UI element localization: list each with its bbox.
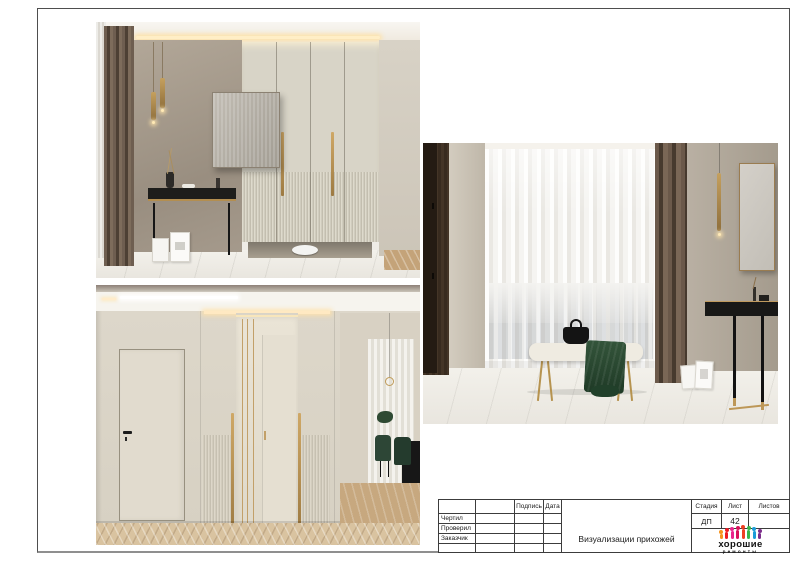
chair-leg: [380, 461, 381, 477]
person-icon: [725, 532, 728, 539]
vase: [166, 172, 174, 188]
led-cove-light: [136, 36, 380, 39]
pendant-cord: [153, 42, 154, 94]
robot-vacuum: [292, 245, 318, 255]
logo-text-line2: ремонты: [723, 549, 759, 554]
stage-header: Стадия: [692, 500, 722, 514]
door-handle: [123, 431, 132, 434]
drawing-sheet: Подпись Дата Чертил Проверил Заказчик Ви…: [0, 0, 800, 566]
bag-print: [700, 369, 708, 379]
gold-pendant-light: [160, 78, 165, 108]
hidden-door: [119, 349, 185, 521]
chair-leg: [388, 461, 389, 477]
green-chair: [375, 435, 391, 461]
wardrobe-door-seam: [344, 42, 345, 242]
fluted-wainscot: [298, 435, 330, 533]
person-icon: [736, 530, 739, 539]
logo-text-line1: хорошие: [718, 540, 762, 549]
wood-floor-sliver: [384, 250, 420, 270]
stamp-cell: [476, 534, 515, 544]
linear-ceiling-light: [120, 296, 238, 299]
beige-wall: [449, 143, 485, 368]
gold-trim: [242, 319, 243, 525]
title-block-sheet-info: Стадия Лист Листов ДП 42 хорошие ремонты: [692, 500, 789, 552]
stamp-cell: [476, 514, 515, 524]
chevron-wood-floor: [96, 523, 420, 545]
skyline-haze: [489, 283, 653, 323]
entry-door: [423, 143, 437, 373]
render-hallway-window: [423, 143, 778, 424]
console-leg: [733, 316, 736, 398]
sconce-cord: [719, 143, 720, 173]
stamp-cell: [439, 544, 476, 552]
stamp-cell: [515, 534, 544, 544]
green-chair: [394, 437, 411, 465]
gold-trim: [247, 319, 248, 525]
door-keyhole: [125, 437, 127, 441]
brown-curtain: [104, 26, 134, 266]
people-row-icon: [720, 529, 762, 539]
render-hallway-doors: [96, 285, 420, 545]
door-hinge: [432, 273, 434, 279]
row-label-checked-by: Проверил: [439, 524, 476, 534]
console-table: [705, 301, 778, 316]
curtain-hem-shadow: [485, 361, 657, 368]
signature-header: Подпись: [515, 500, 544, 514]
person-icon: [758, 533, 761, 539]
pendant-glow: [161, 109, 164, 112]
date-header: Дата: [544, 500, 562, 514]
green-throw-tail: [591, 385, 619, 397]
gold-trim: [253, 319, 254, 525]
stamp-cell: [544, 514, 562, 524]
reflected-door: [262, 335, 296, 529]
stamp-cell: [515, 524, 544, 534]
gold-door-handle: [331, 132, 334, 196]
decor-dish: [182, 184, 195, 188]
stamp-cell: [544, 524, 562, 534]
project-title: Визуализации прихожей: [562, 500, 692, 552]
gold-slide-handle: [298, 413, 301, 533]
wall-art: [739, 163, 775, 271]
door-hinge: [432, 203, 434, 209]
console-leg: [761, 316, 764, 402]
decor-bottle: [216, 178, 220, 188]
cove-light: [102, 298, 116, 300]
pendant-cord: [389, 313, 390, 377]
person-icon: [747, 530, 750, 539]
person-icon: [731, 531, 734, 539]
person-icon: [742, 529, 745, 539]
stamp-cell: [476, 524, 515, 534]
stamp-cell: [515, 544, 544, 552]
gold-pendant-ring: [385, 377, 394, 386]
stamp-cell: [476, 500, 515, 514]
pendant-glow: [152, 121, 155, 124]
title-block: Подпись Дата Чертил Проверил Заказчик Ви…: [438, 499, 790, 553]
handbag: [563, 327, 589, 344]
stamp-cell: [544, 534, 562, 544]
row-label-client: Заказчик: [439, 534, 476, 544]
gold-door-handle: [281, 132, 284, 196]
gold-wall-sconce: [717, 173, 721, 231]
ceiling: [96, 22, 420, 42]
shopping-bag: [152, 238, 169, 262]
gold-slide-handle: [231, 413, 234, 533]
sconce-glow: [718, 233, 721, 236]
console-leg: [228, 203, 230, 255]
person-icon: [753, 531, 756, 539]
panel-seam: [334, 311, 335, 525]
reflected-door-handle: [264, 431, 266, 440]
ceiling-recess: [96, 285, 420, 292]
pendant-cord: [162, 42, 163, 80]
wardrobe-door-seam: [310, 42, 311, 242]
sheet-header: Лист: [722, 500, 749, 514]
render-hallway-wardrobe: [96, 22, 420, 278]
sheets-total-header: Листов: [749, 500, 789, 514]
wall-shade: [96, 311, 102, 525]
gold-leg-foot: [733, 398, 736, 406]
stamp-cell: [515, 514, 544, 524]
title-block-signatures: Подпись Дата Чертил Проверил Заказчик: [439, 500, 562, 552]
plant: [377, 411, 393, 423]
side-wall: [379, 40, 420, 256]
row-label-drawn-by: Чертил: [439, 514, 476, 524]
niche-led-line: [236, 315, 298, 317]
stamp-cell: [476, 544, 515, 552]
gold-pendant-light: [151, 92, 156, 120]
fluted-wainscot: [202, 435, 234, 533]
panel-seam: [200, 311, 201, 525]
brown-curtain: [655, 143, 687, 383]
wall-art: [212, 92, 280, 168]
company-logo: хорошие ремонты: [692, 529, 789, 554]
console-table: [148, 188, 236, 201]
stamp-cell: [544, 544, 562, 552]
stamp-cell: [439, 500, 476, 514]
bag-print: [175, 242, 185, 250]
stage-value: ДП: [692, 514, 722, 529]
ceiling: [96, 292, 420, 311]
person-icon: [720, 534, 723, 539]
